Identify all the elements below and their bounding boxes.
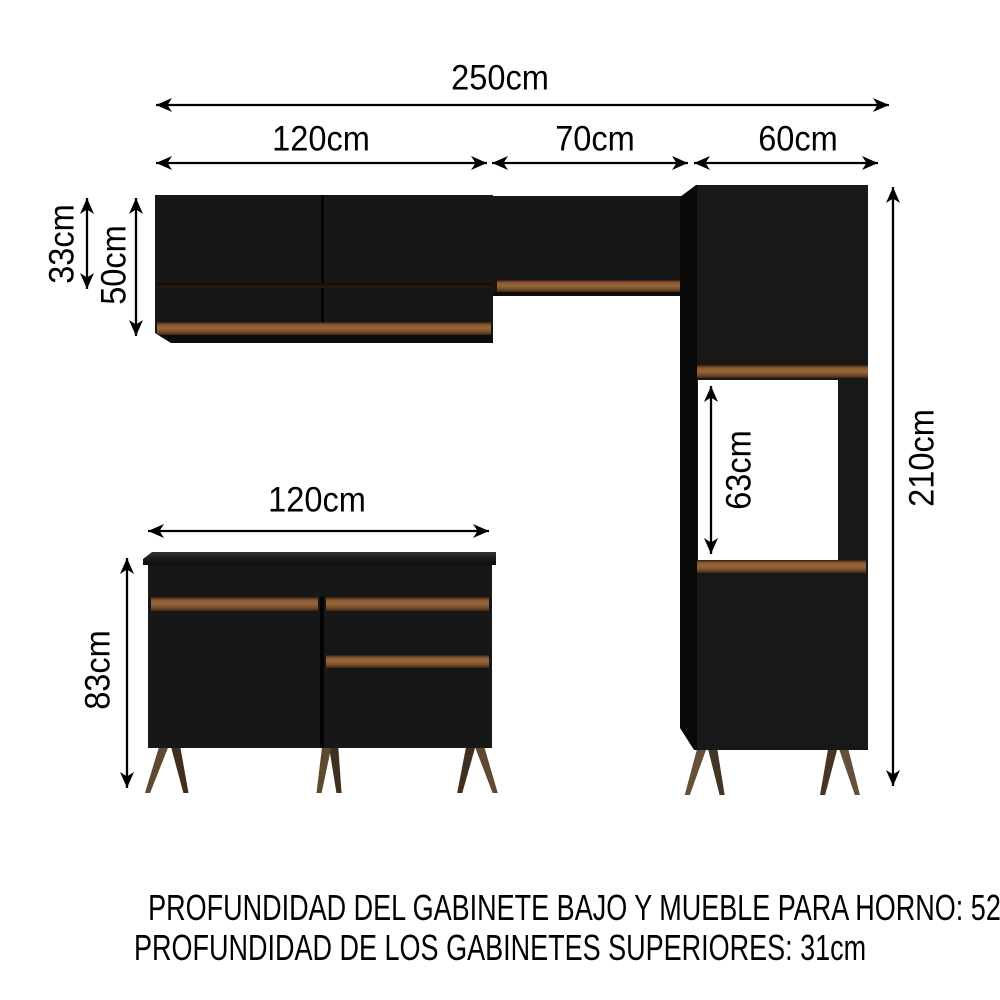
base-cabinet-divider: [320, 597, 324, 748]
footnote-depth-base-text: PROFUNDIDAD DEL GABINETE BAJO Y MUEBLE P…: [148, 889, 1000, 927]
base-cabinet-wood-trim-left: [151, 597, 318, 611]
footnote-depth-upper-text: PROFUNDIDAD DE LOS GABINETES SUPERIORES:…: [134, 929, 866, 967]
wall-cabinet-left: [155, 195, 493, 343]
wall-cabinet-middle: [493, 196, 696, 296]
base-cabinet-wood-trim-right-lower: [326, 655, 489, 668]
oven-tower-leg-rear-right: [815, 749, 840, 795]
dim-label-base-height: 83cm: [81, 630, 116, 710]
dim-label-oven-space-height: 63cm: [722, 430, 757, 510]
oven-tower-leg-rear-left: [705, 749, 730, 795]
oven-tower-side-panel: [680, 185, 697, 750]
base-cabinet-wood-trim-right-upper: [326, 597, 489, 611]
base-cabinet-leg-rear-left: [168, 747, 194, 793]
footnote-depth-base: PROFUNDIDAD DEL GABINETE BAJO Y MUEBLE P…: [0, 889, 1000, 927]
dim-label-upper-left-height: 50cm: [97, 225, 132, 305]
dim-label-upper-left-width: 120cm: [272, 122, 370, 157]
dim-label-oven-tower-height: 210cm: [905, 409, 940, 507]
wall-cabinet-middle-bottom-edge: [493, 292, 696, 296]
base-cabinet-leg-front-right: [472, 747, 503, 793]
wall-cabinet-middle-wood-trim: [497, 280, 692, 292]
oven-tower-cabinet: [680, 185, 868, 750]
base-cabinet-countertop: [143, 552, 496, 565]
dim-label-total-width: 250cm: [451, 61, 549, 96]
dim-label-upper-middle-width: 70cm: [555, 122, 635, 157]
wall-cabinet-left-bottom-edge: [155, 335, 493, 343]
footnote-depth-upper: PROFUNDIDAD DE LOS GABINETES SUPERIORES:…: [0, 929, 1000, 967]
oven-tower-lower-wood-trim: [697, 560, 866, 573]
dim-label-base-width: 120cm: [268, 483, 366, 518]
base-cabinet-body: [148, 565, 492, 748]
oven-tower-leg-front-right: [836, 749, 865, 795]
kitchen-dimensions-diagram: 250cm 120cm 70cm 60cm 33cm 50cm 210cm 63…: [0, 0, 1000, 1000]
dim-label-upper-middle-height: 33cm: [45, 204, 80, 284]
base-cabinet: [143, 552, 496, 748]
oven-tower-leg-front-left: [680, 749, 709, 795]
wall-cabinet-left-door-seam: [157, 283, 491, 288]
wall-cabinet-left-door-divider: [321, 195, 324, 322]
oven-tower-upper-wood-trim: [697, 365, 868, 378]
base-cabinet-leg-front-left: [140, 747, 171, 793]
base-cabinet-leg-rear-right: [452, 747, 478, 793]
wall-cabinet-left-wood-trim: [157, 322, 491, 335]
dim-label-oven-tower-width: 60cm: [758, 122, 838, 157]
